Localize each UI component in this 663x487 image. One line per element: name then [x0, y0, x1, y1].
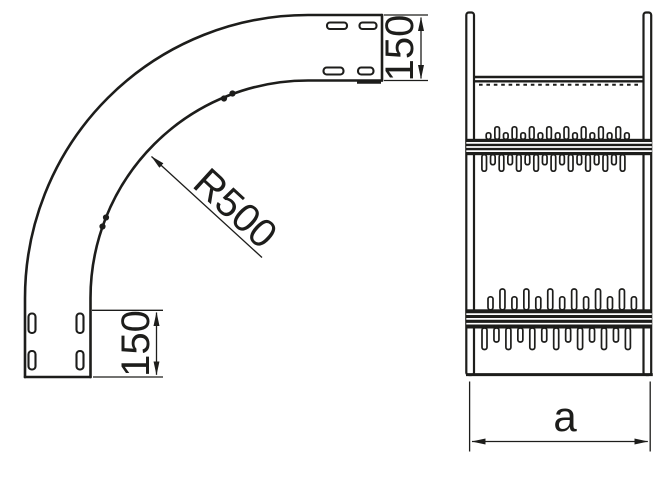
expansion-tab-down — [602, 328, 607, 350]
mounting-slot — [324, 68, 344, 75]
expansion-tab-down — [518, 328, 523, 342]
expansion-tab-down — [551, 155, 556, 172]
expansion-tab-up — [536, 297, 541, 310]
expansion-tab-down — [506, 328, 511, 350]
dimension-label-width: a — [553, 393, 577, 440]
mounting-slot — [358, 68, 374, 75]
expansion-tab-up — [500, 289, 505, 310]
expansion-tab-down — [482, 328, 487, 350]
expansion-tab-down — [586, 155, 591, 172]
expansion-tab-up — [572, 289, 577, 310]
expansion-tab-down — [491, 155, 496, 165]
expansion-tab-down — [554, 328, 559, 350]
mounting-slot — [29, 314, 36, 334]
expansion-joint-bands — [466, 127, 652, 350]
dimension-radius: R500 — [152, 157, 286, 258]
expansion-tab-up — [560, 297, 565, 310]
mounting-slot — [77, 351, 84, 370]
expansion-tab-up — [608, 297, 613, 310]
expansion-tab-up — [488, 297, 493, 310]
expansion-tab-up — [524, 289, 529, 310]
expansion-tab-up — [573, 133, 578, 140]
expansion-tab-down — [560, 155, 565, 165]
dimension-label-150-bottom: 150 — [114, 310, 158, 377]
expansion-tab-down — [603, 155, 608, 172]
expansion-tab-up — [495, 127, 500, 140]
expansion-tab-up — [619, 289, 624, 310]
mounting-slot — [29, 351, 36, 370]
expansion-tab-up — [584, 297, 589, 310]
expansion-tab-up — [512, 297, 517, 310]
expansion-tab-down — [499, 155, 504, 172]
expansion-tab-down — [612, 155, 617, 165]
dimension-150-bottom: 150 — [92, 310, 163, 377]
plan-view-bend: a — [466, 13, 653, 452]
expansion-tab-up — [512, 127, 517, 140]
expansion-tab-down — [494, 328, 499, 342]
dimension-width-a: a — [470, 382, 651, 452]
mounting-slot — [77, 314, 84, 334]
expansion-tab-up — [529, 127, 534, 140]
expansion-tab-up — [548, 289, 553, 310]
dimension-label-radius: R500 — [185, 160, 285, 257]
expansion-joint-lower — [466, 289, 652, 350]
expansion-tab-down — [508, 155, 513, 165]
expansion-tab-down — [620, 155, 625, 172]
expansion-tab-down — [517, 155, 522, 172]
expansion-tab-up — [616, 127, 621, 140]
expansion-tab-down — [542, 328, 547, 342]
expansion-tab-down — [566, 328, 571, 342]
expansion-tab-up — [564, 127, 569, 140]
expansion-tab-down — [625, 328, 630, 350]
expansion-joint-upper — [466, 127, 652, 171]
side-view-bend: 150 150 R500 — [25, 15, 428, 377]
expansion-tab-up — [486, 133, 491, 140]
expansion-tab-up — [625, 133, 630, 140]
expansion-tab-up — [599, 127, 604, 140]
expansion-tab-down — [568, 155, 573, 172]
expansion-tab-up — [538, 133, 543, 140]
expansion-tab-up — [607, 133, 612, 140]
expansion-tab-up — [596, 289, 601, 310]
end-connector — [474, 77, 644, 85]
mounting-slot — [327, 23, 347, 30]
expansion-tab-down — [534, 155, 539, 172]
expansion-tab-up — [504, 133, 509, 140]
expansion-tab-down — [613, 328, 618, 342]
expansion-tab-down — [577, 155, 582, 165]
dimension-label-150-top: 150 — [378, 15, 422, 82]
mounting-slot — [360, 23, 377, 30]
expansion-tab-down — [525, 155, 530, 165]
expansion-tab-down — [578, 328, 583, 350]
expansion-tab-up — [555, 133, 560, 140]
expansion-tab-down — [590, 328, 595, 342]
expansion-tab-up — [590, 133, 595, 140]
dimension-150-top: 150 — [378, 15, 428, 82]
expansion-tab-up — [631, 297, 636, 310]
bend-drawing: 150 150 R500 a — [0, 0, 663, 487]
drawing-canvas: 150 150 R500 a — [0, 0, 663, 487]
expansion-tab-down — [542, 155, 547, 165]
expansion-tab-down — [530, 328, 535, 350]
expansion-tab-up — [581, 127, 586, 140]
expansion-tab-up — [521, 133, 526, 140]
expansion-tab-down — [594, 155, 599, 165]
expansion-tab-down — [482, 155, 487, 172]
expansion-tab-up — [547, 127, 552, 140]
